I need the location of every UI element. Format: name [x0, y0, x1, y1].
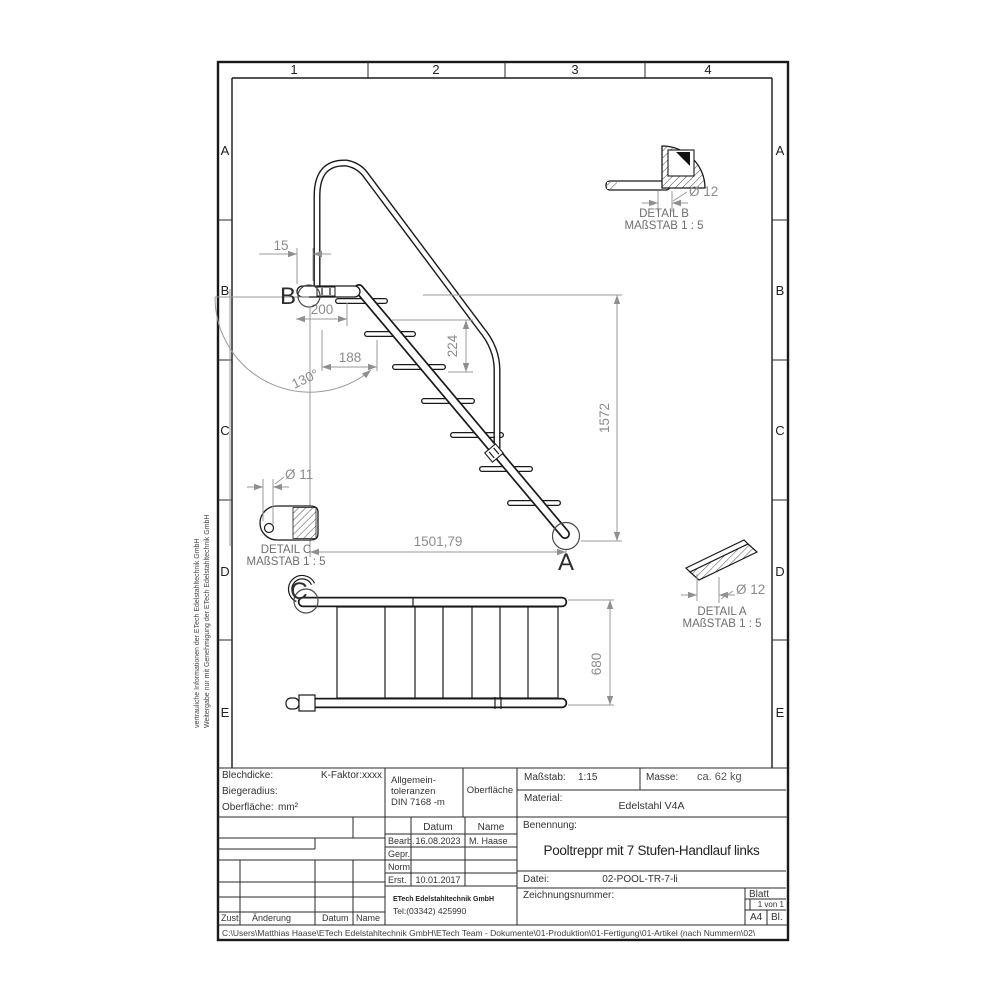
detail-c-scale: MAßSTAB 1 : 5	[246, 556, 325, 568]
datei-value: 02-POOL-TR-7-li	[560, 874, 720, 885]
tolerances-line1: Allgemein-	[391, 775, 436, 786]
marker-letter-c: C	[290, 578, 307, 605]
plan-dimensions: 680	[568, 600, 614, 705]
dim-200: 200	[311, 302, 334, 317]
ruler-col-2: 2	[430, 62, 442, 77]
company-tel: Tel:(03342) 425990	[393, 906, 466, 916]
ruler-row-c-right: C	[772, 423, 788, 438]
dim-15: 15	[273, 238, 288, 253]
revision-aenderung: Änderung	[252, 913, 291, 923]
blatt-label: Blatt	[749, 889, 769, 900]
oberflaeche-value: mm²	[278, 802, 298, 813]
tolerances-line2: toleranzen	[391, 786, 435, 797]
blechdicke-label: Blechdicke:	[222, 770, 273, 781]
ruler-row-e-left: E	[218, 705, 232, 720]
revision-name: Name	[356, 913, 380, 923]
detail-b-title: DETAIL B	[639, 208, 689, 220]
bl-label: Bl.	[771, 912, 783, 923]
material-value: Edelstahl V4A	[517, 800, 786, 812]
detail-b-dia: Ø 12	[689, 184, 718, 199]
format-value: A4	[750, 912, 762, 923]
plan-view: 680 C	[286, 577, 614, 711]
approval-col-name: Name	[465, 822, 517, 833]
revision-zust: Zust.	[221, 913, 241, 923]
ruler-col-1: 1	[288, 62, 300, 77]
detail-c-view: Ø 11 DETAIL C MAßSTAB 1 : 5	[246, 467, 325, 568]
ruler-row-a-left: A	[218, 143, 232, 158]
masse-label: Masse:	[646, 772, 678, 783]
massstab-label: Maßstab:	[524, 772, 566, 783]
ruler-row-e-right: E	[772, 705, 788, 720]
company-name: ETech Edelstahltechnik GmbH	[393, 896, 494, 903]
ruler-row-b-left: B	[218, 283, 232, 298]
detail-a-view: Ø 12 DETAIL A MAßSTAB 1 : 5	[681, 540, 765, 630]
massstab-value: 1:15	[578, 772, 597, 783]
detail-b-scale: MAßSTAB 1 : 5	[624, 220, 703, 232]
stringer	[359, 289, 565, 534]
zeichnungsnummer-label: Zeichnungsnummer:	[523, 890, 614, 901]
benennung-label: Benennung:	[523, 820, 577, 831]
approval-row-gepr: Gepr.	[388, 849, 410, 859]
detail-c-dia: Ø 11	[285, 467, 313, 482]
ruler-row-d-right: D	[772, 564, 788, 579]
dim-angle: 130°	[289, 366, 321, 391]
confidential-note: vertrauliche Informationen der ETech Ede…	[193, 458, 212, 728]
ruler-row-c-left: C	[218, 423, 232, 438]
revision-datum: Datum	[322, 913, 349, 923]
dim-1572: 1572	[597, 403, 612, 433]
top-platform	[297, 286, 360, 297]
tolerances-line3: DIN 7168 -m	[391, 797, 445, 808]
marker-letter-a: A	[558, 549, 574, 576]
ruler-row-a-right: A	[772, 143, 788, 158]
ruler-col-4: 4	[702, 62, 714, 77]
approval-row-norm: Norm	[388, 862, 410, 872]
marker-letter-b: B	[280, 283, 296, 310]
plan-top-stringer	[303, 597, 562, 607]
detail-a-title: DETAIL A	[697, 606, 747, 618]
k-faktor-value: K-Faktor:xxxx	[290, 770, 382, 781]
oberflaeche-header: Oberfläche	[463, 785, 517, 796]
detail-c-title: DETAIL C	[261, 544, 311, 556]
dim-1501: 1501,79	[414, 534, 463, 549]
ruler-row-b-right: B	[772, 283, 788, 298]
ruler-row-d-left: D	[218, 564, 232, 579]
approval-bearb-datum: 16.08.2023	[411, 836, 465, 846]
footer-file-path: C:\Users\Matthias Haase\ETech Edelstahlt…	[222, 928, 755, 938]
detail-a-scale: MAßSTAB 1 : 5	[682, 618, 761, 630]
benennung-value: Pooltreppr mit 7 Stufen-Handlauf links	[517, 843, 786, 858]
plan-steps	[337, 607, 558, 698]
ruler-col-3: 3	[569, 62, 581, 77]
masse-value: ca. 62 kg	[697, 771, 742, 783]
drawing-sheet: 15 200 188 224 130° 1572	[0, 0, 1000, 1000]
drawing-canvas: 15 200 188 224 130° 1572	[0, 0, 1000, 1000]
datei-label: Datei:	[523, 874, 549, 885]
oberflaeche-label: Oberfläche:	[222, 802, 274, 813]
dim-188: 188	[339, 350, 362, 365]
approval-bearb-name: M. Haase	[469, 836, 508, 846]
biegeradius-label: Biegeradius:	[222, 786, 278, 797]
detail-b-view: Ø 12 DETAIL B MAßSTAB 1 : 5	[606, 146, 718, 232]
approval-col-datum: Datum	[411, 822, 465, 833]
dim-224: 224	[445, 334, 460, 357]
confidential-line-1: vertrauliche Informationen der ETech Ede…	[193, 458, 203, 728]
confidential-line-2: Weitergabe nur mit Genehmigung der ETech…	[203, 458, 213, 728]
blatt-value: 1 von 1	[750, 900, 784, 909]
detail-a-dia: Ø 12	[736, 582, 765, 597]
approval-row-erst: Erst.	[388, 875, 407, 885]
dim-680: 680	[589, 653, 604, 676]
handrail	[317, 163, 497, 452]
approval-erst-datum: 10.01.2017	[411, 875, 465, 885]
